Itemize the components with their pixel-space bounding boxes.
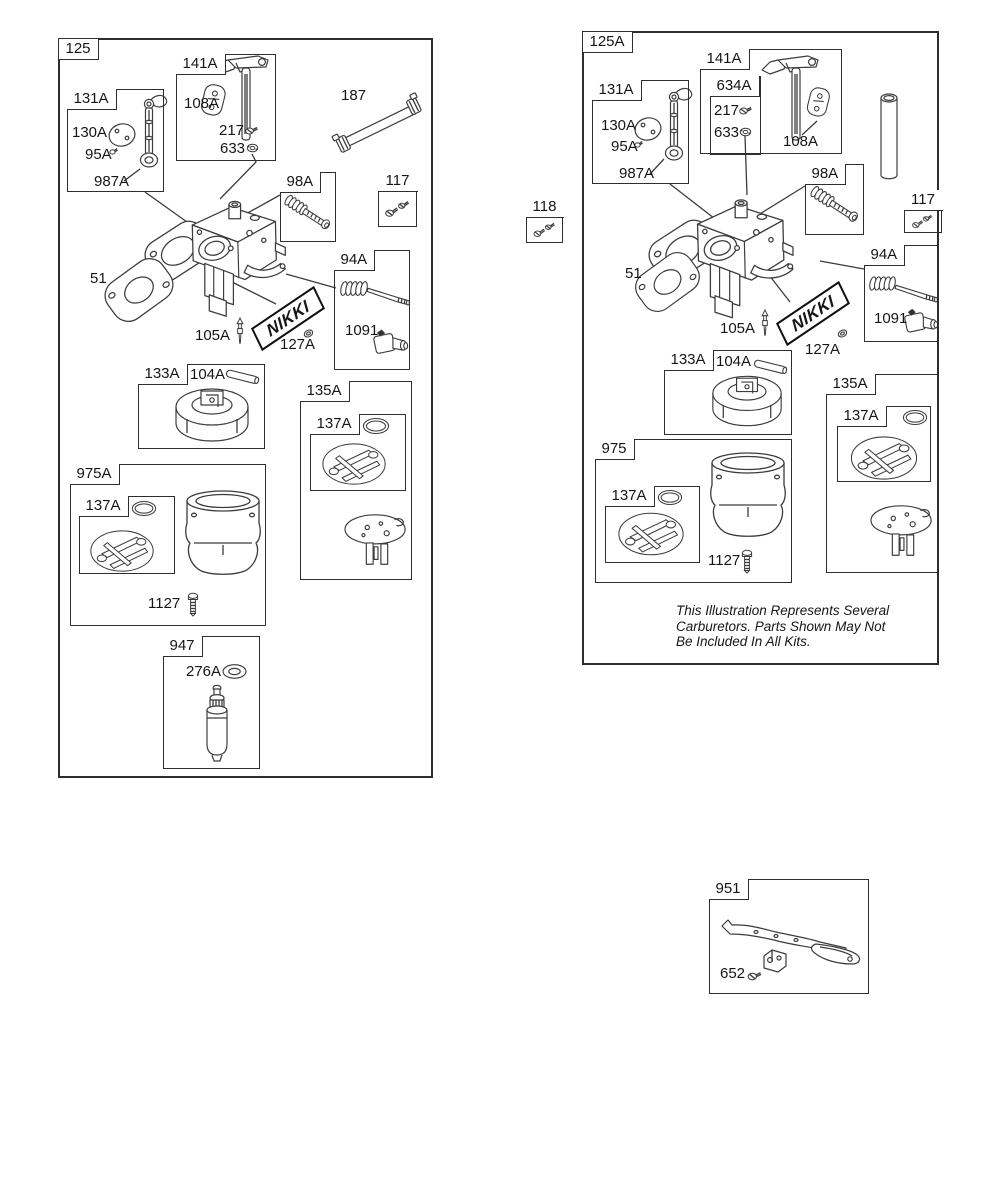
group-ref-tag: 141A xyxy=(700,49,750,70)
group-box-135A: 135A 137A xyxy=(826,374,938,573)
part-label-104A: 104A xyxy=(716,354,751,370)
assembly-panel-125A: 125A 141A 634A 131A 98A 117 94A 133A 135… xyxy=(582,31,939,665)
group-ref-tag: 137A xyxy=(310,414,360,435)
part-label-105A: 105A xyxy=(720,321,755,337)
group-ref-tag: 947 xyxy=(163,636,203,657)
part-label-217: 217 xyxy=(714,103,739,119)
group-ref-tag: 975A xyxy=(70,464,120,485)
panel-ref: 125 xyxy=(66,40,91,57)
part-label-187: 187 xyxy=(341,88,366,104)
part-label-987A: 987A xyxy=(94,174,129,190)
needle-105A-illustration xyxy=(762,310,768,335)
group-ref: 117 xyxy=(911,191,935,208)
group-ref: 947 xyxy=(170,637,195,654)
part-label-108A: 108A xyxy=(783,134,818,150)
group-box-947: 947 xyxy=(163,636,260,769)
disclaimer-note: This Illustration Represents Several Car… xyxy=(676,603,889,650)
leader-line xyxy=(670,184,719,222)
part-label-95A: 95A xyxy=(85,147,112,163)
part-label-127A: 127A xyxy=(805,342,840,358)
group-ref: 98A xyxy=(287,173,314,190)
group-ref: 118 xyxy=(533,198,557,215)
group-box-975: 975 137A xyxy=(595,439,792,583)
group-ref-tag: 137A xyxy=(837,406,887,427)
group-box-117: 117 xyxy=(904,190,942,233)
parts-diagram-page: { "left_panel": { "ref": "125", "box_141… xyxy=(0,0,1005,1200)
leader-line xyxy=(820,261,864,269)
group-box-137A: 137A xyxy=(310,414,406,491)
part-label-104A: 104A xyxy=(190,367,225,383)
group-ref: 137A xyxy=(86,497,121,514)
group-ref: 117 xyxy=(386,172,410,189)
needle-105A-illustration xyxy=(237,318,243,343)
group-ref-tag: 634A xyxy=(710,76,760,97)
part-label-1127: 1127 xyxy=(148,596,180,612)
group-box-98A: 98A xyxy=(280,172,336,242)
group-ref: 137A xyxy=(612,487,647,504)
group-ref-tag: 137A xyxy=(605,486,655,507)
group-ref: 137A xyxy=(844,407,879,424)
group-ref: 94A xyxy=(871,246,898,263)
group-ref-tag: 117 xyxy=(904,190,943,211)
leader-line xyxy=(234,283,276,304)
part-label-1091: 1091 xyxy=(874,311,907,327)
group-ref-tag: 94A xyxy=(864,245,906,266)
group-ref-tag: 117 xyxy=(378,171,418,192)
group-ref: 133A xyxy=(145,365,180,382)
group-ref: 975 xyxy=(602,440,627,457)
group-ref: 135A xyxy=(307,382,342,399)
part-label-130A: 130A xyxy=(72,125,107,141)
group-ref-tag: 94A xyxy=(334,250,376,271)
disclaimer-line-1: This Illustration Represents Several xyxy=(676,603,889,619)
group-ref: 951 xyxy=(716,880,741,897)
part-label-217: 217 xyxy=(219,123,244,139)
group-ref-tag: 133A xyxy=(138,364,188,385)
part-label-633: 633 xyxy=(220,141,245,157)
group-ref: 131A xyxy=(74,90,109,107)
group-box-117: 117 xyxy=(378,171,417,227)
group-ref-tag: 131A xyxy=(67,89,117,110)
disclaimer-line-3: Be Included In All Kits. xyxy=(676,634,889,650)
group-ref-tag: 98A xyxy=(280,172,322,193)
part-label-127A: 127A xyxy=(280,337,315,353)
disclaimer-line-2: Carburetors. Parts Shown May Not xyxy=(676,619,889,635)
part-label-51: 51 xyxy=(625,266,642,282)
group-box-137A: 137A xyxy=(605,486,700,563)
group-box-137A: 137A xyxy=(79,496,175,574)
group-ref-tag: 135A xyxy=(300,381,350,402)
part-label-987A: 987A xyxy=(619,166,654,182)
part-label-51: 51 xyxy=(90,271,107,287)
group-ref-tag: 975 xyxy=(595,439,635,460)
group-ref: 634A xyxy=(717,77,752,94)
group-ref: 137A xyxy=(317,415,352,432)
group-ref-tag: 141A xyxy=(176,54,226,75)
part-label-633: 633 xyxy=(714,125,739,141)
group-box-94A: 94A xyxy=(864,245,939,342)
group-box-94A: 94A xyxy=(334,250,410,370)
part-label-1091: 1091 xyxy=(345,323,378,339)
group-ref: 131A xyxy=(599,81,634,98)
group-ref-tag: 133A xyxy=(664,350,714,371)
group-box-118: 118 xyxy=(526,197,563,243)
bracket-illustration xyxy=(764,950,786,972)
group-ref-tag: 98A xyxy=(805,164,847,185)
panel-ref-tag: 125A xyxy=(583,32,633,53)
group-ref: 141A xyxy=(707,50,742,67)
group-ref: 98A xyxy=(812,165,839,182)
screw-652-illustration xyxy=(748,973,761,980)
part-label-1127: 1127 xyxy=(708,553,740,569)
group-box-137A: 137A xyxy=(837,406,931,482)
group-ref-tag: 118 xyxy=(526,197,564,218)
group-ref-tag: 137A xyxy=(79,496,129,517)
group-ref-tag: 951 xyxy=(709,879,749,900)
group-box-951: 951 652 xyxy=(709,879,869,994)
part-label-95A: 95A xyxy=(611,139,638,155)
group-box-98A: 98A xyxy=(805,164,864,235)
leader-line xyxy=(769,275,790,302)
group-ref: 975A xyxy=(77,465,112,482)
fuel-pipe-illustration xyxy=(881,94,897,179)
group-box-135A: 135A 137A xyxy=(300,381,412,580)
panel-ref-tag: 125 xyxy=(59,39,99,60)
group-ref-tag: 131A xyxy=(592,80,642,101)
part-label-105A: 105A xyxy=(195,328,230,344)
leader-line xyxy=(286,274,336,288)
group-ref: 133A xyxy=(671,351,706,368)
part-label-130A: 130A xyxy=(601,118,636,134)
part-label-108A: 108A xyxy=(184,96,219,112)
part-label-652: 652 xyxy=(720,966,745,982)
group-ref-tag: 135A xyxy=(826,374,876,395)
assembly-panel-125: 125 141A 131A 98A 117 94A 133A 135A 137A… xyxy=(58,38,433,778)
panel-ref: 125A xyxy=(590,33,625,50)
control-lever-illustration xyxy=(722,920,859,964)
part-label-276A: 276A xyxy=(186,664,221,680)
group-ref: 141A xyxy=(183,55,218,72)
group-ref: 135A xyxy=(833,375,868,392)
seal-127A-illustration xyxy=(837,329,848,339)
group-ref: 94A xyxy=(341,251,368,268)
